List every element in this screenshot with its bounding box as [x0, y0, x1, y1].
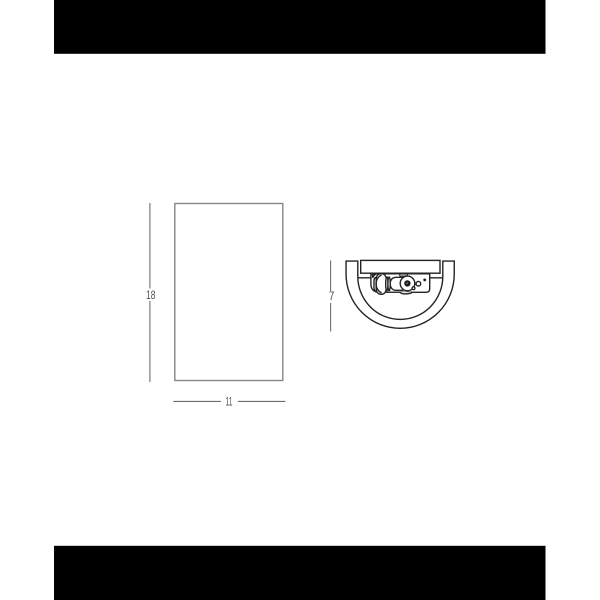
- svg-text:11: 11: [226, 397, 233, 409]
- svg-text:7: 7: [329, 291, 335, 303]
- svg-text:18: 18: [146, 290, 156, 302]
